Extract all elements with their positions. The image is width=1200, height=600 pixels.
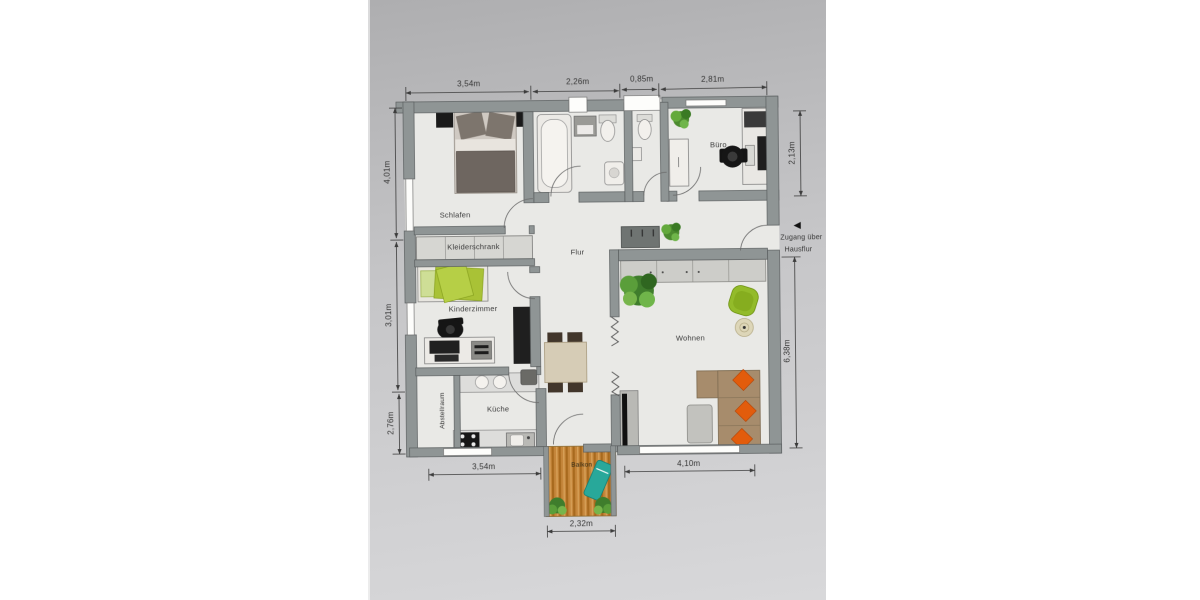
screenshot: 3,54m 2,26m 0,85m 2,81m 4,01m 3,01m 2,76…	[0, 0, 1200, 600]
room-label-buero: Büro	[710, 141, 727, 149]
entrance-note-line2: Hausflur	[785, 246, 813, 253]
dim-right-1: 2,13m	[788, 141, 796, 164]
floorplan-photo: 3,54m 2,26m 0,85m 2,81m 4,01m 3,01m 2,76…	[368, 0, 826, 600]
floorplan: 3,54m 2,26m 0,85m 2,81m 4,01m 3,01m 2,76…	[365, 0, 829, 600]
room-label-balkon: Balkon	[571, 463, 592, 470]
dim-right-2: 6,38m	[783, 339, 791, 362]
dim-top-2: 2,26m	[566, 78, 589, 86]
entrance-note-line1: Zugang über	[780, 234, 822, 241]
room-label-schlafen: Schlafen	[440, 212, 471, 220]
room-label-abstellraum: Abstellraum	[440, 392, 447, 429]
room-label-flur: Flur	[571, 248, 585, 256]
floorplan-graphic	[365, 0, 829, 600]
room-label-kleiderschrank: Kleiderschrank	[447, 243, 499, 251]
dim-left-1: 4,01m	[384, 161, 392, 184]
room-label-kinderzimmer: Kinderzimmer	[449, 305, 498, 313]
balcony	[546, 446, 617, 517]
room-label-wohnen: Wohnen	[676, 334, 705, 342]
dim-top-1: 3,54m	[457, 80, 480, 88]
entrance-arrow-icon: ◄	[791, 219, 803, 231]
dim-bottom-3: 2,32m	[570, 520, 593, 528]
dim-bottom-1: 3,54m	[472, 463, 495, 471]
dim-bottom-2: 4,10m	[677, 460, 700, 468]
dim-left-2: 3,01m	[385, 304, 393, 327]
dim-left-3: 2,76m	[387, 412, 395, 435]
dim-top-4: 2,81m	[701, 76, 724, 84]
room-label-kueche: Küche	[487, 405, 509, 413]
dim-top-3: 0,85m	[630, 75, 653, 83]
